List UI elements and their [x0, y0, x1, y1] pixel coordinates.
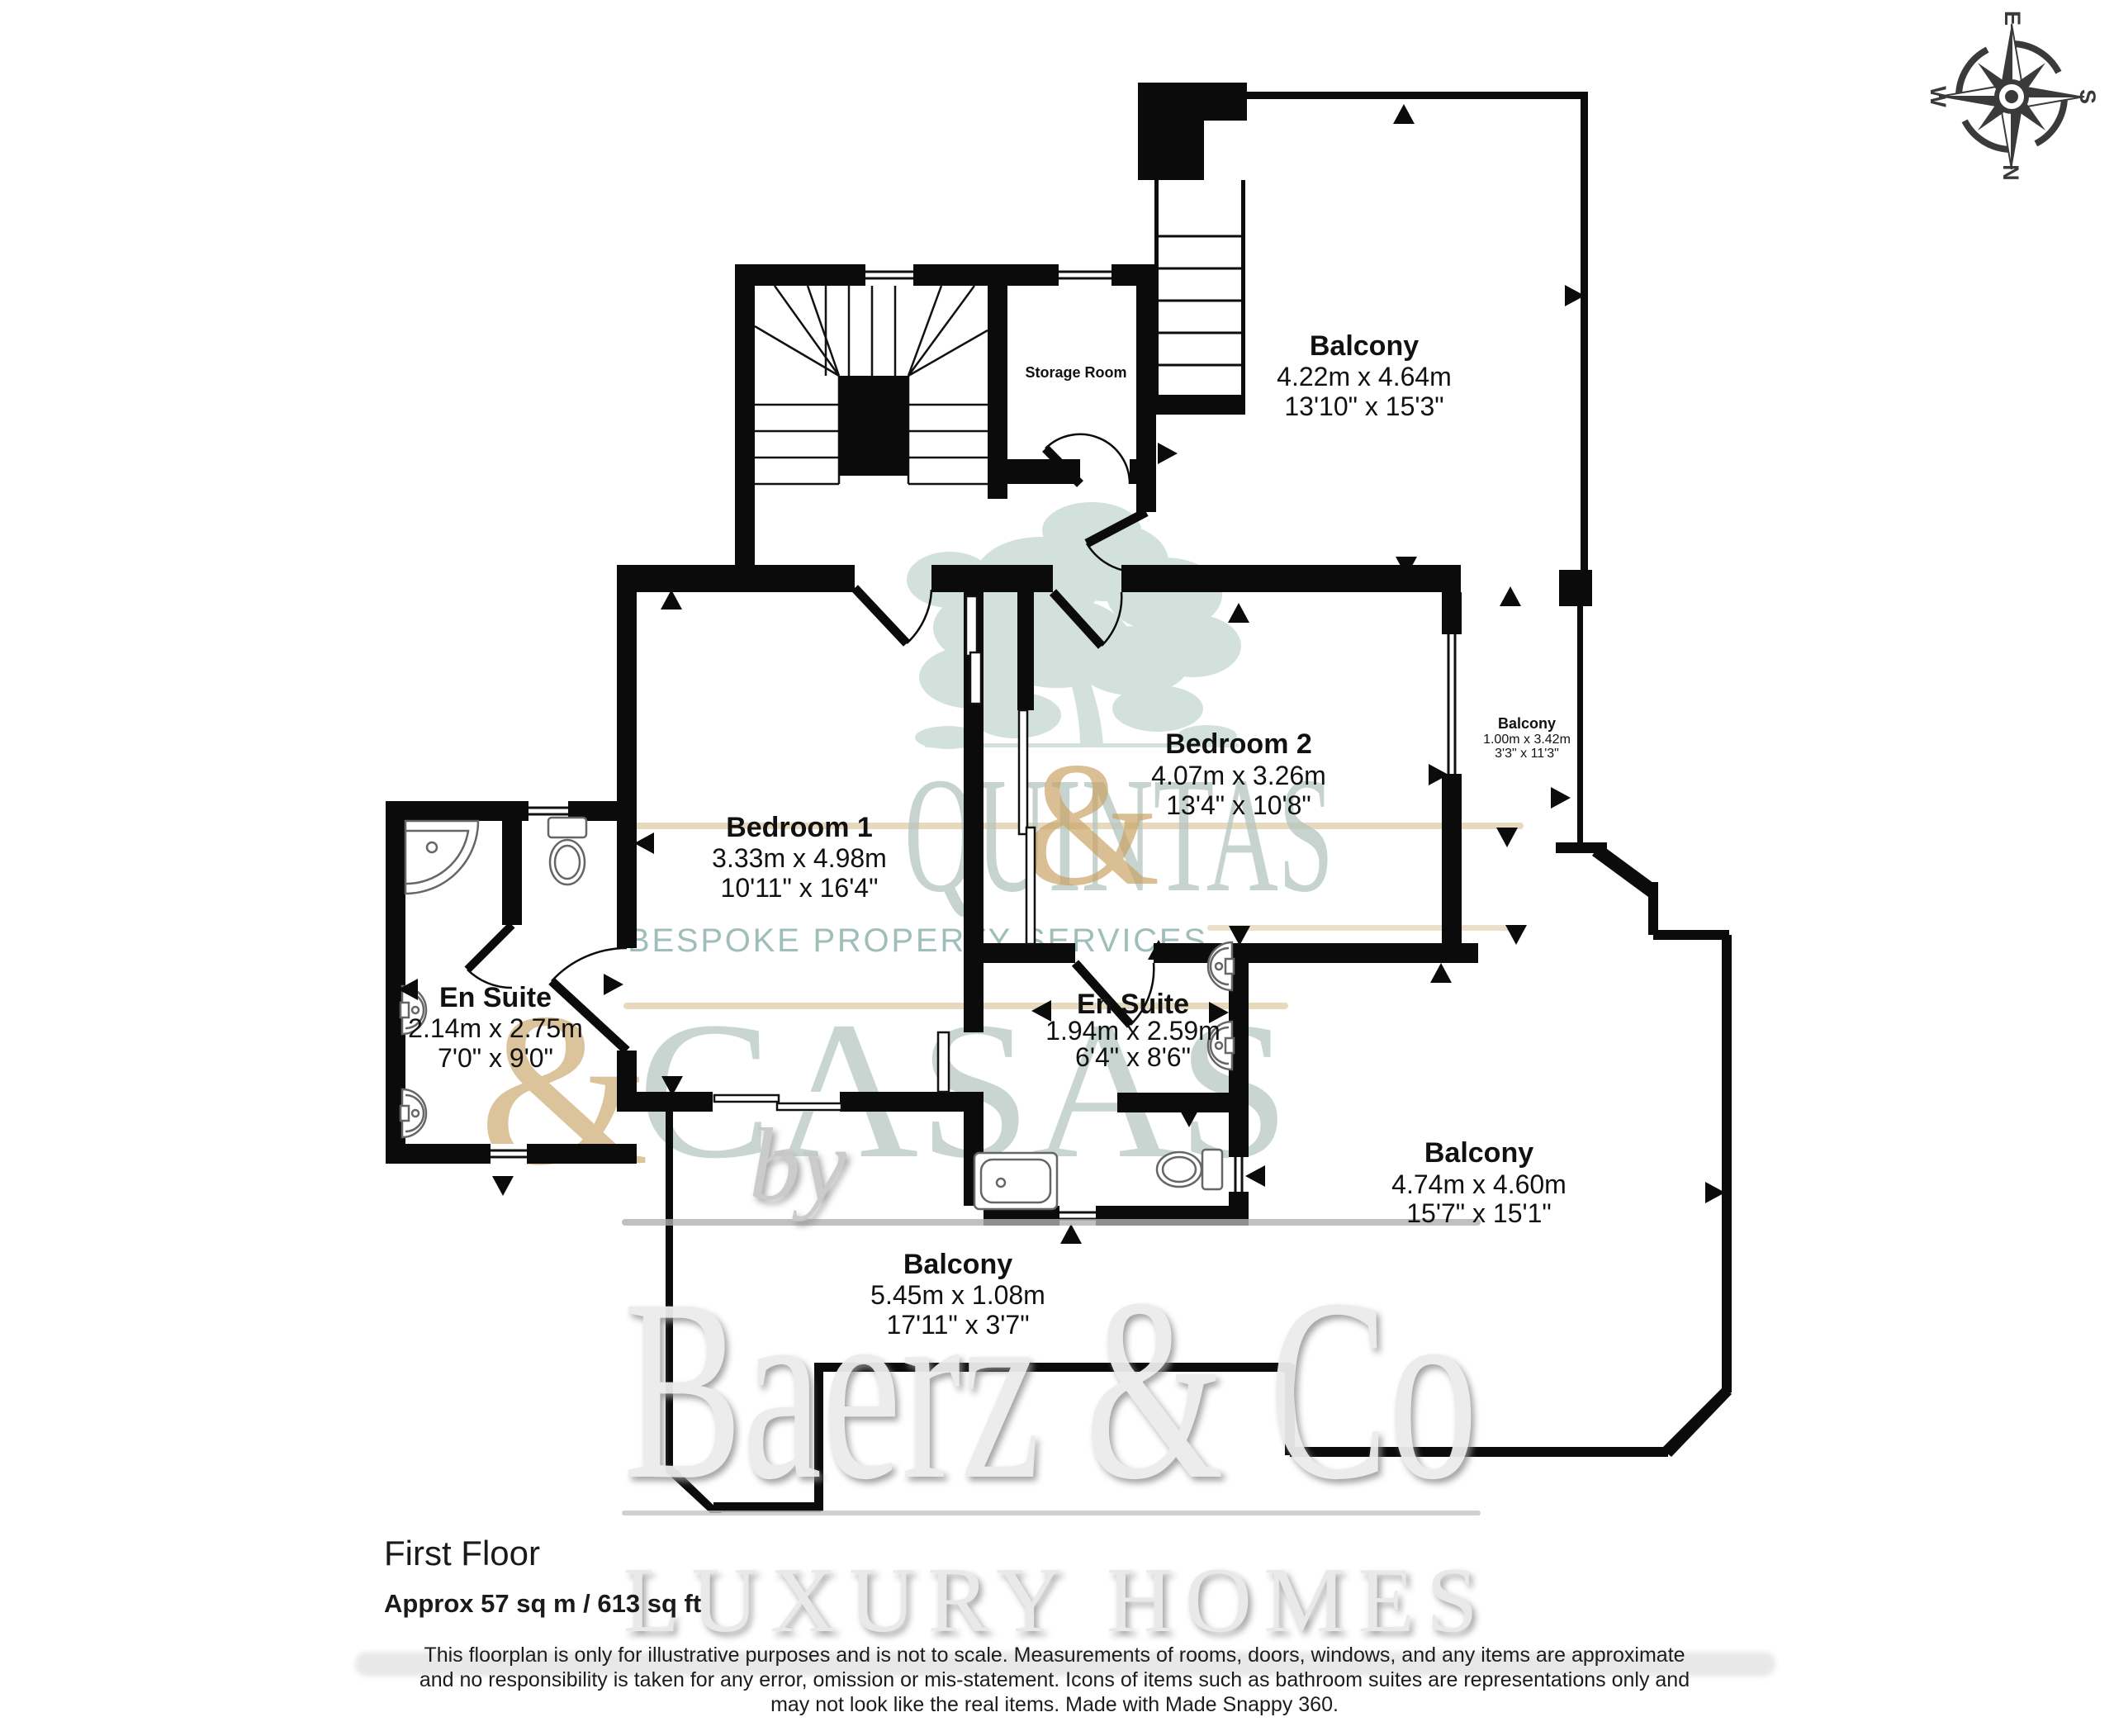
- svg-text:7'0" x 9'0": 7'0" x 9'0": [438, 1043, 553, 1073]
- svg-text:4.22m x 4.64m: 4.22m x 4.64m: [1277, 362, 1452, 391]
- svg-text:Balcony: Balcony: [1310, 330, 1419, 362]
- compass-south-label: S: [2075, 89, 2100, 104]
- window: [1059, 264, 1112, 286]
- svg-text:Balcony: Balcony: [1498, 715, 1556, 732]
- svg-text:13'10" x 15'3": 13'10" x 15'3": [1284, 391, 1443, 421]
- watermark-by: by: [749, 1108, 847, 1222]
- svg-text:En Suite: En Suite: [439, 982, 552, 1013]
- compass-east-label: E: [2000, 11, 2025, 26]
- compass-west-label: W: [1926, 86, 1950, 107]
- watermark-tagline: BESPOKE PROPERTY SERVICES: [628, 923, 1206, 959]
- toilet-icon: [548, 818, 586, 885]
- svg-text:Bedroom 2: Bedroom 2: [1165, 728, 1312, 760]
- watermark-ampersand-1: &: [1022, 725, 1160, 923]
- svg-text:4.74m x 4.60m: 4.74m x 4.60m: [1391, 1169, 1567, 1199]
- compass-north-label: N: [1998, 164, 2023, 181]
- svg-text:Balcony: Balcony: [903, 1249, 1012, 1280]
- window: [491, 1144, 527, 1164]
- window: [1229, 1157, 1249, 1192]
- svg-text:10'11" x 16'4": 10'11" x 16'4": [721, 873, 879, 903]
- svg-text:4.07m x 3.26m: 4.07m x 3.26m: [1151, 761, 1326, 790]
- svg-text:3.33m x 4.98m: 3.33m x 4.98m: [712, 843, 887, 873]
- disclaimer-line-2: and no responsibility is taken for any e…: [419, 1668, 1690, 1691]
- watermark-divider-bottom: [622, 1511, 1481, 1515]
- window: [865, 264, 913, 286]
- svg-text:15'7" x 15'1": 15'7" x 15'1": [1406, 1198, 1552, 1228]
- room-label-bedroom-2: Bedroom 2 4.07m x 3.26m 13'4" x 10'8": [1151, 728, 1326, 820]
- disclaimer-line-1: This floorplan is only for illustrative …: [424, 1644, 1685, 1667]
- toilet-icon: [1157, 1150, 1222, 1189]
- svg-text:Balcony: Balcony: [1424, 1137, 1533, 1169]
- window: [1442, 634, 1462, 774]
- svg-text:6'4" x 8'6": 6'4" x 8'6": [1075, 1042, 1191, 1072]
- svg-text:13'4" x 10'8": 13'4" x 10'8": [1166, 790, 1311, 820]
- disclaimer-line-3: may not look like the real items. Made w…: [770, 1693, 1339, 1716]
- svg-text:3'3" x 11'3": 3'3" x 11'3": [1495, 747, 1559, 761]
- svg-text:17'11" x 3'7": 17'11" x 3'7": [886, 1310, 1029, 1340]
- floor-area: Approx 57 sq m / 613 sq ft: [384, 1589, 701, 1618]
- bathtub-icon: [974, 1153, 1057, 1209]
- svg-text:1.00m x 3.42m: 1.00m x 3.42m: [1483, 733, 1571, 747]
- svg-text:2.14m x 2.75m: 2.14m x 2.75m: [408, 1013, 583, 1043]
- watermark-brand: Baerz & Co: [623, 1245, 1478, 1534]
- svg-text:Storage Room: Storage Room: [1025, 364, 1126, 381]
- svg-text:1.94m x 2.59m: 1.94m x 2.59m: [1045, 1016, 1221, 1046]
- floorplan: QUINTAS & & CASAS BESPOKE PROPERTY SERVI…: [0, 0, 2114, 1736]
- room-label-bedroom-1: Bedroom 1 3.33m x 4.98m 10'11" x 16'4": [712, 812, 887, 903]
- room-label-storage: Storage Room: [1025, 364, 1126, 381]
- svg-text:Bedroom 1: Bedroom 1: [726, 812, 873, 843]
- floor-title: First Floor: [384, 1534, 540, 1572]
- svg-text:5.45m x 1.08m: 5.45m x 1.08m: [870, 1280, 1045, 1310]
